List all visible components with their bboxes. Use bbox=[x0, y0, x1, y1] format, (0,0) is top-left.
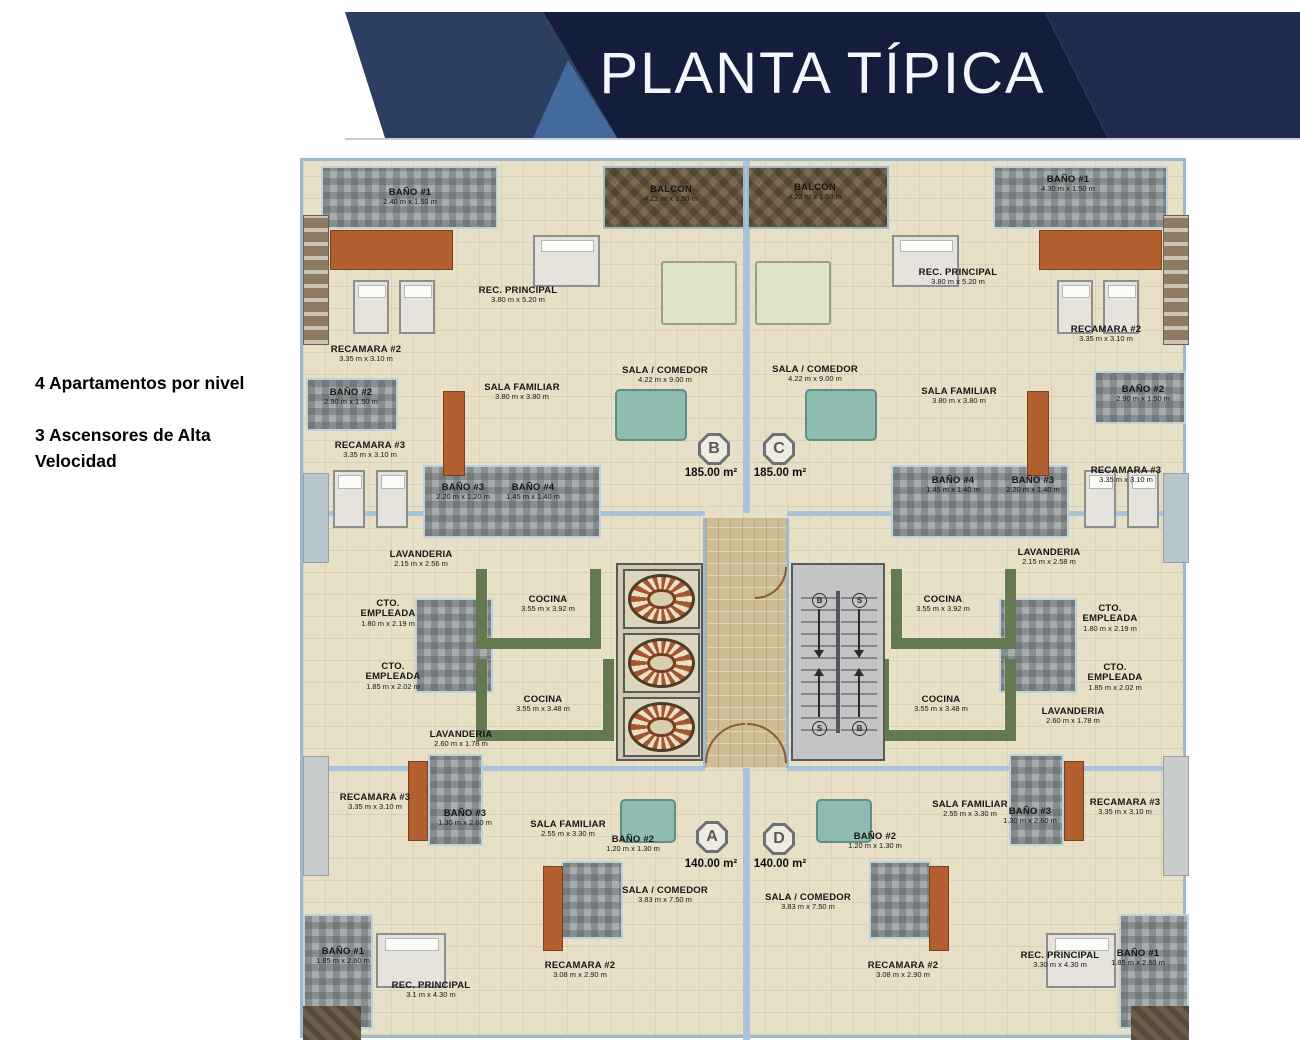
zone-kitchen-br bbox=[878, 659, 1016, 741]
corridor bbox=[703, 518, 789, 768]
room-label-tl-recamara3: RECAMARA #33.35 m x 3.10 m bbox=[315, 441, 425, 460]
ledge-right-upper bbox=[1163, 215, 1189, 345]
unit-badge-d: D bbox=[763, 823, 795, 855]
room-label-br-lavanderia: LAVANDERIA2.60 m x 1.78 m bbox=[1018, 707, 1128, 726]
closet-bl bbox=[543, 866, 563, 951]
room-label-tr-cto-empleada: CTO. EMPLEADA1.80 m x 2.19 m bbox=[1078, 604, 1142, 634]
center-wall-bottom bbox=[743, 768, 750, 1040]
stair-marker: B bbox=[812, 593, 827, 608]
ledge-left-lower bbox=[303, 756, 329, 876]
bed-main-bl bbox=[376, 933, 446, 988]
elevator-1 bbox=[623, 569, 700, 629]
wardrobe-tr bbox=[1027, 391, 1049, 476]
band-wall-lower-right bbox=[787, 766, 1189, 771]
room-label-tl-cto-empleada: CTO. EMPLEADA1.80 m x 2.19 m bbox=[356, 599, 420, 629]
corner-tile-br bbox=[1131, 1006, 1189, 1040]
ledge-left-upper bbox=[303, 215, 329, 345]
ledge-right-lower bbox=[1163, 756, 1189, 876]
zone-bath-tl-bano2 bbox=[306, 378, 398, 431]
zone-bath-tr-bano2 bbox=[1094, 371, 1186, 424]
title-banner: PLANTA TÍPICA bbox=[345, 12, 1300, 138]
ledge-right-middle bbox=[1163, 473, 1189, 563]
zone-bath-tr-bano1 bbox=[993, 166, 1168, 229]
elevator-2 bbox=[623, 633, 700, 693]
sofa-tr bbox=[755, 261, 831, 325]
dining-table-bl bbox=[620, 799, 676, 843]
stair-marker: B bbox=[852, 721, 867, 736]
bed-main-tr bbox=[892, 235, 959, 287]
dining-table-br bbox=[816, 799, 872, 843]
bed-twin-tl3 bbox=[376, 470, 408, 528]
stair-arrow-down-icon bbox=[858, 609, 860, 657]
zone-kitchen-bl bbox=[476, 659, 614, 741]
room-label-br-recamara2: RECAMARA #23.08 m x 2.90 m bbox=[848, 961, 958, 980]
note-apartments-per-level: 4 Apartamentos por nivel bbox=[35, 370, 267, 396]
unit-badge-b: B bbox=[698, 433, 730, 465]
wardrobe-br bbox=[1064, 761, 1084, 841]
closet-tl bbox=[330, 230, 453, 270]
room-label-bl-sala-comedor: SALA / COMEDOR3.83 m x 7.50 m bbox=[610, 886, 720, 905]
unit-area-d: 140.00 m² bbox=[754, 858, 806, 870]
corner-tile-bl bbox=[303, 1006, 361, 1040]
room-label-tr-sala-comedor: SALA / COMEDOR4.22 m x 9.00 m bbox=[760, 365, 870, 384]
stairwell: B S S B bbox=[791, 563, 885, 761]
sofa-tl bbox=[661, 261, 737, 325]
wardrobe-bl bbox=[408, 761, 428, 841]
closet-tr bbox=[1039, 230, 1162, 270]
zone-bath-bl-bano2 bbox=[561, 861, 623, 939]
zone-kitchen-tr bbox=[891, 569, 1016, 649]
band-wall-lower-left bbox=[303, 766, 705, 771]
stair-rail bbox=[836, 591, 840, 733]
stair-arrow-up-icon bbox=[858, 669, 860, 717]
bed-main-tl bbox=[533, 235, 600, 287]
elevator-core bbox=[616, 563, 703, 761]
stair-arrow-up-icon bbox=[818, 669, 820, 717]
room-label-br-cto-empleada: CTO. EMPLEADA1.85 m x 2.02 m bbox=[1083, 663, 1147, 693]
ledge-left-middle bbox=[303, 473, 329, 563]
elevator-3 bbox=[623, 697, 700, 757]
zone-bath-br-bano3 bbox=[1009, 754, 1064, 846]
stair-marker: S bbox=[812, 721, 827, 736]
room-label-bl-recamara2: RECAMARA #23.08 m x 2.90 m bbox=[525, 961, 635, 980]
stair-arrow-down-icon bbox=[818, 609, 820, 657]
balcony-top-right bbox=[747, 166, 889, 229]
elevator-medallion-icon bbox=[628, 574, 695, 624]
elevator-medallion-icon bbox=[628, 638, 695, 688]
floor-plan: B S S B bbox=[300, 158, 1186, 1038]
room-label-tl-rec-principal: REC. PRINCIPAL3.80 m x 5.20 m bbox=[463, 286, 573, 305]
room-label-tl-sala-familiar: SALA FAMILIAR3.80 m x 3.80 m bbox=[467, 383, 577, 402]
zone-bath-tl-bano1 bbox=[321, 166, 498, 229]
room-label-tl-sala-comedor: SALA / COMEDOR4.22 m x 9.00 m bbox=[610, 366, 720, 385]
wardrobe-tl bbox=[443, 391, 465, 476]
note-elevators: 3 Ascensores de Alta Velocidad bbox=[35, 422, 267, 474]
unit-badge-c: C bbox=[763, 433, 795, 465]
unit-area-c: 185.00 m² bbox=[754, 467, 806, 479]
stair-marker: S bbox=[852, 593, 867, 608]
banner-bottom-edge bbox=[345, 138, 1300, 140]
room-label-tr-sala-familiar: SALA FAMILIAR3.80 m x 3.80 m bbox=[904, 387, 1014, 406]
room-label-tl-recamara2: RECAMARA #23.35 m x 3.10 m bbox=[311, 345, 421, 364]
bed-twin-tr3 bbox=[1084, 470, 1116, 528]
elevator-medallion-icon bbox=[628, 702, 695, 752]
closet-br bbox=[929, 866, 949, 951]
zone-bath-bl-bano3 bbox=[428, 754, 483, 846]
zone-kitchen-tl bbox=[476, 569, 601, 649]
zone-bath-br-bano2 bbox=[869, 861, 931, 939]
bed-twin-tl bbox=[399, 280, 435, 334]
bed-main-br bbox=[1046, 933, 1116, 988]
dining-table-tl bbox=[615, 389, 687, 441]
balcony-top-left bbox=[603, 166, 745, 229]
dining-table-tr bbox=[805, 389, 877, 441]
feature-notes: 4 Apartamentos por nivel 3 Ascensores de… bbox=[35, 370, 267, 500]
page-title: PLANTA TÍPICA bbox=[345, 40, 1300, 107]
bed-twin-tl bbox=[353, 280, 389, 334]
room-label-tl-lavanderia: LAVANDERIA2.15 m x 2.56 m bbox=[366, 550, 476, 569]
planta-tipica-slide: PLANTA TÍPICA 4 Apartamentos por nivel 3… bbox=[0, 0, 1300, 1040]
bed-twin-tr bbox=[1057, 280, 1093, 334]
bed-twin-tr3 bbox=[1127, 470, 1159, 528]
unit-badge-a: A bbox=[696, 821, 728, 853]
unit-area-a: 140.00 m² bbox=[685, 858, 737, 870]
unit-area-b: 185.00 m² bbox=[685, 467, 737, 479]
bed-twin-tr bbox=[1103, 280, 1139, 334]
room-label-tr-lavanderia: LAVANDERIA2.15 m x 2.58 m bbox=[994, 548, 1104, 567]
bed-twin-tl3 bbox=[333, 470, 365, 528]
room-label-bl-sala-familiar: SALA FAMILIAR2.55 m x 3.30 m bbox=[513, 820, 623, 839]
room-label-br-sala-comedor: SALA / COMEDOR3.83 m x 7.50 m bbox=[753, 893, 863, 912]
